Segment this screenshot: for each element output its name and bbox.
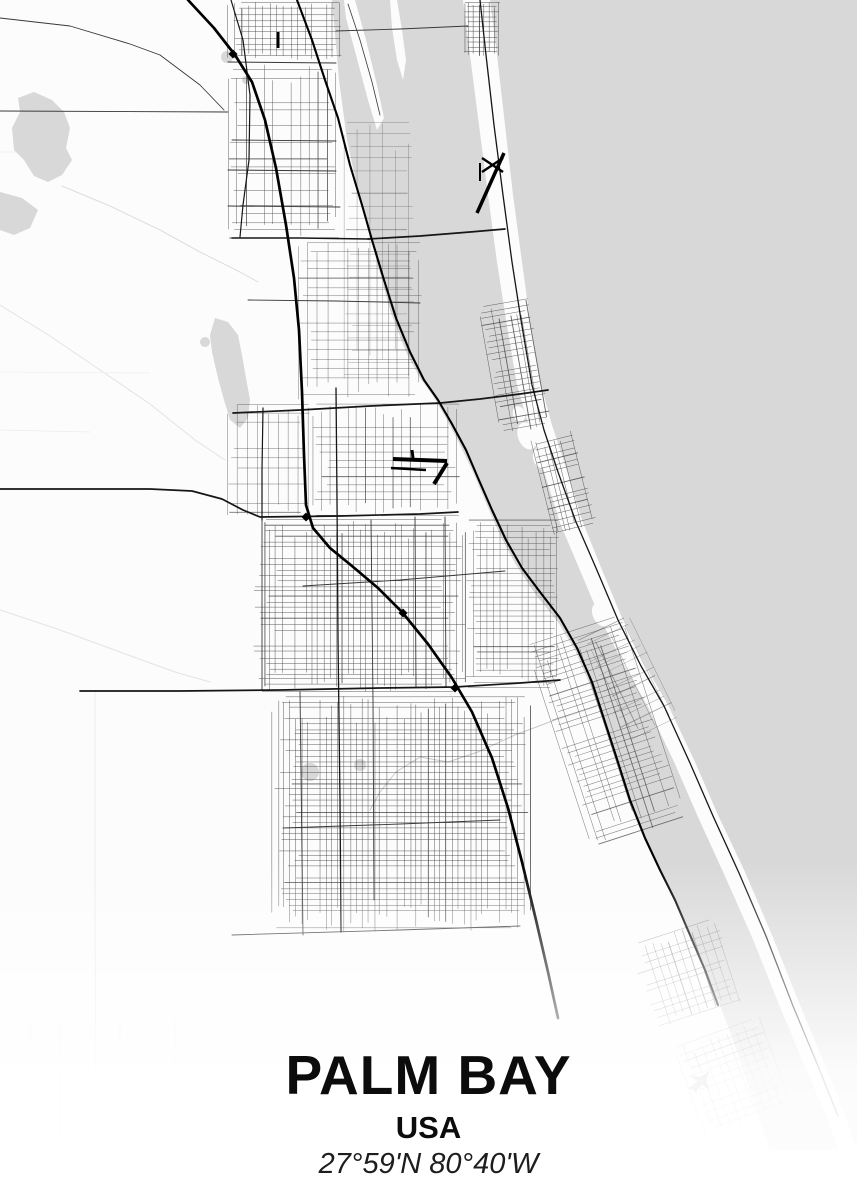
map-canvas (0, 0, 857, 1200)
map-poster: PALM BAY USA 27°59'N 80°40'W (0, 0, 857, 1200)
poster-caption: PALM BAY USA 27°59'N 80°40'W (0, 1048, 857, 1179)
country-label: USA (0, 1112, 857, 1143)
pond (301, 763, 319, 781)
pond (354, 759, 366, 771)
pond (200, 337, 210, 347)
city-title: PALM BAY (0, 1048, 857, 1103)
coordinates-label: 27°59'N 80°40'W (0, 1150, 857, 1179)
